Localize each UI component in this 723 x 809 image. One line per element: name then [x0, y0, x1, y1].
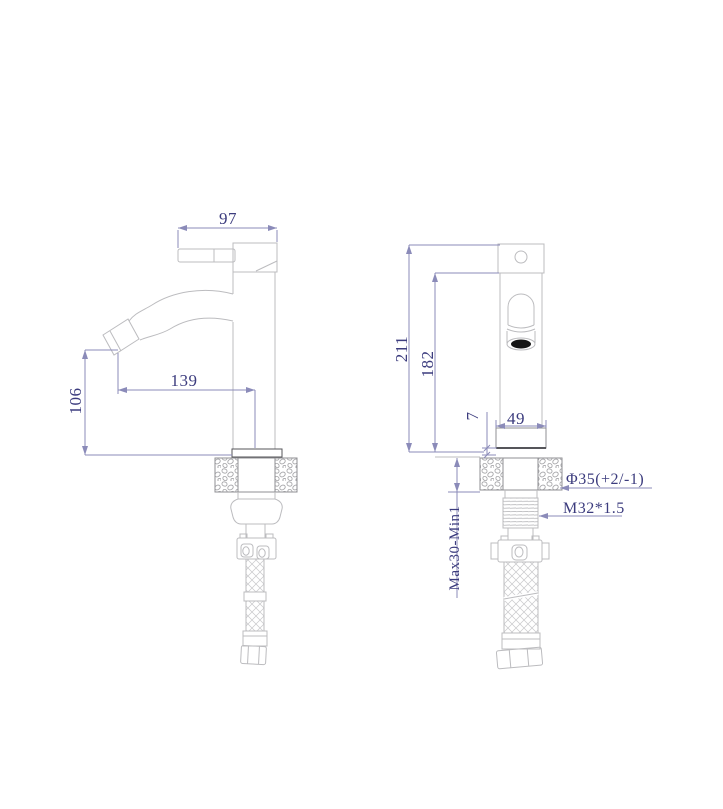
dim-lines-handle-length [178, 228, 277, 248]
dimension-labels-layer: 97 139 106 211 182 49 7 Max30-Min1 Φ35(+… [66, 209, 644, 591]
geometry-layer [103, 243, 562, 669]
aerator-opening [511, 340, 531, 349]
spout-outlet-front [507, 294, 535, 350]
dim-thread-spec: M32*1.5 [563, 500, 625, 517]
faucet-front-view [435, 244, 562, 669]
dimension-lines-layer [85, 228, 652, 598]
base-plate-front [435, 428, 546, 457]
dim-upper-height: 182 [418, 351, 437, 378]
mounting-nut-side [215, 458, 297, 492]
dim-base-offset: 7 [463, 412, 482, 421]
faucet-technical-drawing: 97 139 106 211 182 49 7 Max30-Min1 Φ35(+… [0, 0, 723, 809]
dim-lines-base-offset [482, 412, 497, 458]
hose-end-side [241, 631, 267, 665]
dim-spout-reach: 139 [171, 371, 198, 390]
handle-base-side [233, 243, 277, 272]
handle-base-front [498, 244, 544, 273]
dim-base-width: 49 [507, 409, 525, 428]
base-plate-side [232, 449, 282, 457]
dim-lines-total-height [409, 245, 500, 452]
dim-lines-upper-height [435, 273, 499, 452]
dim-nut-diameter: Φ35(+2/-1) [566, 471, 644, 488]
hose-fitting-side [237, 534, 276, 559]
dim-lines-spout-height [85, 350, 232, 455]
dim-total-height: 211 [392, 336, 411, 362]
dim-mounting-range: Max30-Min1 [447, 506, 463, 591]
dim-lines-spout-reach [118, 353, 255, 448]
dim-spout-height: 106 [66, 388, 85, 415]
threaded-shank-front [503, 490, 538, 540]
faucet-side-view [103, 243, 297, 665]
braided-hose-side [244, 559, 266, 631]
handle-lever-side [178, 249, 235, 262]
dim-handle-length: 97 [219, 209, 237, 228]
hose-end-front [496, 633, 542, 669]
spout-side [129, 290, 233, 340]
body-column-side [233, 272, 275, 449]
shank-side [231, 492, 282, 538]
drawing-canvas: 97 139 106 211 182 49 7 Max30-Min1 Φ35(+… [0, 0, 723, 809]
mounting-nut-front [480, 458, 562, 490]
hose-fitting-front [491, 536, 549, 562]
braided-hose-front [504, 562, 538, 633]
